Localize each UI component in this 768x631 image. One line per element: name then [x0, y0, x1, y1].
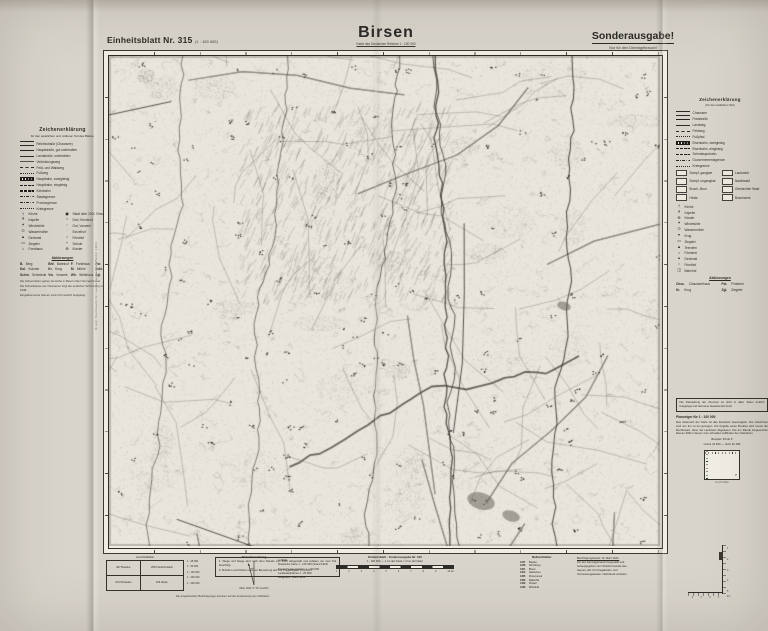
- abbreviation-pair: F.Forsthaus: [71, 262, 94, 266]
- area-symbol-row: Buschwerk: [722, 194, 765, 201]
- map-symbol-icon: ⌂: [676, 252, 682, 256]
- line-symbol-sw-thin: [20, 161, 34, 162]
- legend-symbol-row: ⌂Forsthaus: [20, 247, 61, 251]
- adjoining-cell: 298 Friedrichstadt: [140, 560, 183, 575]
- legend-line-list: ChausseePoststraßeLandwegFeldwegFußpfadE…: [676, 111, 764, 169]
- abbreviation-pair: Schm.Schmiede: [20, 273, 46, 277]
- line-symbol-sw-dot: [676, 166, 690, 167]
- line-symbol-sw-solid: [20, 156, 34, 157]
- legend-title: Zeichenerklärung: [20, 127, 105, 134]
- abbreviation-pair: Zgl.Ziegelei: [722, 288, 765, 292]
- scale-tick-label: 2: [348, 570, 349, 573]
- legend-symbol-row: ▭Ziegelei: [20, 242, 61, 246]
- legend-line-row: Staatsgrenze: [20, 195, 105, 199]
- edition-scale: 1 : 100 000: [187, 571, 212, 575]
- abbreviation-pair: Vw.Vorwerk: [48, 273, 69, 277]
- grid-ticks-bottom: [109, 550, 662, 553]
- planzeiger-diagram: P: [704, 450, 740, 480]
- line-symbol-sw-dash: [676, 131, 690, 132]
- legend-footnote: Die Höhenzahlen geben die Höhe in Metern…: [20, 280, 105, 284]
- scale-ratio: 1 : 100 000 — 1 cm der Karte = 1 km der …: [336, 560, 454, 563]
- legend-line-row: Eisenbahn, eingleisig: [676, 147, 764, 151]
- corner-ruler: 12345 4321 km: [686, 543, 766, 605]
- legend-line-row: Verbindungsweg: [20, 160, 105, 164]
- declination-title: Nadelabweichung: [234, 555, 274, 559]
- map-symbol-icon: †: [676, 205, 682, 209]
- ruler-number: 1: [727, 547, 728, 550]
- scale-tick-labels: 12345678910 km: [336, 570, 454, 573]
- declination-value: Mitte 1944: 6° 30′ westlich: [234, 587, 274, 590]
- line-symbol-sw-thick: [20, 150, 34, 151]
- area-symbol-grid: Sumpf, gangbarLaubwaldSumpf, ungangbarNa…: [676, 170, 764, 203]
- mtb-rows: 1237Bauske1238Schönberg1301Birsen1302Sal…: [520, 561, 564, 590]
- legend-symbol-row: ✶Windmühle: [20, 224, 61, 228]
- grid-ticks-right: [664, 56, 667, 548]
- line-symbol-sw-rail1: [676, 154, 690, 155]
- abbreviation-pair: Fst.Försterei: [722, 282, 765, 286]
- planzeiger-ticks-y: [706, 451, 708, 479]
- legend-symbols-left: †Kirche✝Kapelle✶Windmühle⊙Wassermühle▲De…: [20, 212, 61, 253]
- map-symbol-icon: ○: [64, 236, 70, 240]
- point-symbol-list: †Kirche✝Kapelle⊕Kloster✶Windmühle⊙Wasser…: [676, 205, 764, 273]
- legend-symbol-row: ▴Denkmal: [676, 257, 764, 261]
- scale-bar: [336, 565, 454, 570]
- source-line: Deutsche Heereskarte 1 : 100 000: [278, 568, 336, 572]
- map-symbol-icon: ·: [64, 230, 70, 234]
- map-canvas: [109, 56, 660, 546]
- abbreviations-title: Abkürzungen: [676, 276, 764, 280]
- ruler-number: 3: [700, 596, 701, 599]
- ruler-horizontal-scale: [688, 592, 723, 596]
- edition-scale: 1 : 50 000: [187, 565, 212, 569]
- area-symbol-row: Sumpf, gangbar: [676, 170, 719, 177]
- edition-scale: 1 : 300 000: [187, 582, 212, 586]
- legend-subtitle: für den westlichen und mittleren Teil de…: [20, 135, 105, 139]
- planzeiger-ticks-x: [705, 452, 739, 454]
- scale-tick-label: 8: [423, 570, 424, 573]
- legend-symbol-row: +Schule: [64, 242, 105, 246]
- legend-line-row: Gouvernementsgrenze: [676, 158, 764, 162]
- area-symbol-row: Gemischter Wald: [722, 186, 765, 193]
- map-symbol-icon: ▴: [676, 257, 682, 261]
- line-symbol-sw-rail1: [676, 148, 690, 149]
- scale-tick-label: 4: [373, 570, 374, 573]
- source-line: Russische Karte 1 : 126 000 (Stand 1915): [278, 563, 336, 567]
- scale-tick-label: 7: [410, 570, 411, 573]
- legend-line-row: Hauptbahn, eingleisig: [20, 183, 105, 187]
- planzeiger-title: Planzeiger für 1 : 100 000: [676, 415, 768, 419]
- source-line: Wegenetz: Stand 1943: [278, 576, 336, 580]
- map-symbol-icon: +: [64, 242, 70, 246]
- legend-symbol-row: ▫Gut, Vorwerk: [64, 224, 105, 228]
- border-disclaimer-box: Die Darstellung der Grenzen ist nicht in…: [676, 398, 768, 412]
- legend-symbol-row: ·Einzelhof: [64, 230, 105, 234]
- line-symbol-sw-dashdot: [20, 202, 34, 203]
- edition-scale-list: 1 : 25 0001 : 50 0001 : 100 0001 : 200 0…: [187, 560, 212, 587]
- map-symbol-icon: ✶: [676, 222, 682, 226]
- adjoining-cell: 314 Schaulen: [107, 575, 141, 590]
- adjoining-grid: 297 Bauske 298 Friedrichstadt 314 Schaul…: [106, 560, 184, 591]
- ruler-number: 2: [709, 596, 710, 599]
- legend-footnote: Eingeklammerte Namen sind nicht amtlich …: [20, 294, 105, 298]
- legend-title: Zeichenerklärung: [676, 97, 764, 103]
- declination-diagram: Nadelabweichung Mitte 1944: 6° 30′ westl…: [234, 555, 274, 590]
- legend-line-row: Fußweg: [20, 171, 105, 175]
- map-symbol-icon: ⊙: [20, 230, 26, 234]
- map-symbol-icon: ⊕: [64, 248, 70, 252]
- legend-symbol-row: ▪Dorf, Kirchdorf: [64, 218, 105, 222]
- ruler-number: 1: [718, 596, 719, 599]
- area-symbol-row: Sumpf, ungangbar: [676, 178, 719, 185]
- line-symbol-sw-solid: [676, 125, 690, 126]
- adjoining-cell: 297 Bauske: [107, 560, 141, 575]
- legend-line-row: Landstraße, unterhalten: [20, 154, 105, 158]
- legend-line-row: Kleinbahn: [20, 189, 105, 193]
- mtb-list: Meßtischblätter: 1237Bauske1238Schönberg…: [520, 556, 564, 590]
- declination-arrows: [241, 560, 267, 586]
- sources-block: Luftbild:Russische Karte 1 : 126 000 (St…: [278, 559, 336, 580]
- line-symbol-sw-dot: [20, 208, 34, 209]
- line-symbol-sw-rail2: [20, 177, 34, 181]
- mtb-row: 1430Wobolniki: [520, 586, 564, 589]
- map-symbol-icon: ⌂: [20, 248, 26, 252]
- ruler-number: 4: [727, 579, 728, 582]
- map-symbol-icon: ▲: [676, 246, 682, 250]
- page-title: Birsen: [331, 25, 441, 41]
- area-symbol-row: Heide: [676, 194, 719, 201]
- line-symbol-sw-rail1: [20, 190, 34, 191]
- legend-line-list: Reichsstraße (Chaussee)Hauptstraße, gut …: [20, 141, 105, 210]
- planzeiger-scale-numbers: 0 1 2 3 4 km: [676, 481, 768, 484]
- abbreviations-title: Abkürzungen: [20, 256, 105, 260]
- scale-tick-label: 1: [336, 570, 337, 573]
- line-symbol-sw-double: [20, 141, 34, 146]
- ruler-number: 3: [727, 569, 728, 572]
- map-title-block: Birsen Karte des Deutschen Reiches 1 : 1…: [331, 25, 441, 46]
- area-symbol-row: Nadelwald: [722, 178, 765, 185]
- legend-symbol-row: †Kirche: [676, 205, 764, 209]
- legend-symbol-row: ✝Kapelle: [20, 218, 61, 222]
- adjoining-sheets-table: Anschlußblätter 297 Bauske 298 Friedrich…: [106, 556, 184, 591]
- legend-line-row: Reichsstraße (Chaussee): [20, 141, 105, 146]
- edition-scale: 1 : 25 000: [187, 560, 212, 564]
- abbreviation-pair: Wh.Wirtshaus: [71, 273, 94, 277]
- map-inner-frame: [108, 55, 663, 549]
- legend-line-row: Kreisgrenze: [676, 164, 764, 168]
- legend-symbol-row: ▾Krug: [676, 234, 764, 238]
- map-symbol-icon: ▪: [64, 218, 70, 222]
- legend-symbol-row: ✝Kapelle: [676, 211, 764, 215]
- legend-symbol-row: ⌂Försterei: [676, 251, 764, 255]
- scale-tick-label: 6: [398, 570, 399, 573]
- legend-line-row: Schmalspurbahn: [676, 152, 764, 156]
- scale-tick-label: 5: [386, 570, 387, 573]
- legend-line-row: Poststraße: [676, 117, 764, 121]
- line-symbol-sw-thick: [676, 119, 690, 120]
- legend-panel-east: Zeichenerklärung (für den östlichen Teil…: [676, 97, 764, 294]
- legend-panel-west: Zeichenerklärung für den westlichen und …: [20, 127, 105, 299]
- abbreviations-table: Chss.ChausseehausFst.FörstereiKr.KrugZgl…: [676, 282, 764, 294]
- legend-symbol-row: ○Friedhof: [64, 236, 105, 240]
- bottom-footnote: Die eingedruckten Berichtigungen beruhen…: [112, 595, 334, 598]
- sheet-scale-note: (1 : 100 000): [195, 40, 218, 44]
- edition-scale: 1 : 200 000: [187, 576, 212, 580]
- grid-notes-panel: Die Darstellung der Grenzen ist nicht in…: [676, 398, 768, 484]
- line-symbol-sw-dot: [20, 173, 34, 174]
- page-subtitle: Karte des Deutschen Reiches 1 : 100 000: [331, 42, 441, 46]
- legend-symbol-row: ▭Ziegelei: [676, 240, 764, 244]
- area-symbol-row: Bruch, Moor: [676, 186, 719, 193]
- abbreviation-pair: M.Mühle: [71, 267, 94, 271]
- ruler-number: 5: [727, 590, 728, 593]
- legend-symbol-row: ⊕Kloster: [64, 247, 105, 251]
- line-symbol-sw-dashdot: [676, 160, 690, 161]
- legend-symbol-columns: †Kirche✝Kapelle✶Windmühle⊙Wassermühle▲De…: [20, 212, 105, 253]
- planzeiger-text: Das Gitternetz der Karte ist das Deutsch…: [676, 421, 768, 436]
- area-symbol-box: [676, 194, 687, 201]
- legend-line-row: Chaussee: [676, 111, 764, 116]
- area-symbol-box: [676, 170, 687, 177]
- line-symbol-sw-dot: [676, 136, 690, 137]
- area-symbol-box: [676, 186, 687, 193]
- ruler-horizontal-numbers: 4321: [688, 596, 723, 599]
- planzeiger-example: Beispiel: Punkt P: [676, 438, 768, 442]
- abbreviation-pair: Chss.Chausseehaus: [676, 282, 719, 286]
- legend-line-row: Hauptbahn, zweigleisig: [20, 177, 105, 181]
- sheet-number-text: Einheitsblatt Nr. 315: [107, 35, 192, 45]
- sheet-number-label: Einheitsblatt Nr. 315 (1 : 100 000): [107, 35, 218, 45]
- map-frame: [103, 50, 668, 554]
- special-edition-block: Sonderausgabe! Nur für den Dienstgebrauc…: [572, 26, 694, 50]
- map-symbol-icon: †: [20, 213, 26, 217]
- legend-footnotes: Die Höhenzahlen geben die Höhe in Metern…: [20, 280, 105, 298]
- legend-symbols-right: ◼Stadt über 2000 Einw.▪Dorf, Kirchdorf▫G…: [64, 212, 105, 253]
- legend-symbol-row: ⊙Wassermühle: [20, 230, 61, 234]
- ruler-number: 4: [692, 596, 693, 599]
- legend-subtitle: (für den östlichen Teil): [676, 104, 764, 108]
- map-symbol-icon: ⊕: [676, 217, 682, 221]
- legend-line-row: Fußpfad: [676, 135, 764, 139]
- map-symbol-icon: ▭: [676, 240, 682, 244]
- legend-symbol-row: ○Friedhof: [676, 263, 764, 267]
- line-symbol-sw-rail1: [20, 185, 34, 186]
- line-symbol-sw-double: [676, 111, 690, 116]
- ruler-vertical-numbers: 12345: [727, 547, 728, 593]
- adjoining-cell: 316 Abele: [140, 575, 183, 590]
- abbreviation-pair: Kr.Krug: [48, 267, 69, 271]
- area-symbol-box: [722, 178, 733, 185]
- map-symbol-icon: ▫: [64, 224, 70, 228]
- area-symbol-box: [722, 186, 733, 193]
- line-symbol-sw-dash: [20, 167, 34, 168]
- map-symbol-icon: ◼: [64, 213, 70, 217]
- area-symbol-box: [676, 178, 687, 185]
- map-symbol-icon: ✝: [676, 211, 682, 215]
- scale-tick-label: 10 km: [447, 570, 454, 573]
- print-imprint-vertical: Druck: Reichsamt für Landesaufnahme, Ber…: [94, 242, 98, 330]
- legend-footnote: Die Schreibweise der Ortsnamen folgt der…: [20, 285, 105, 292]
- map-symbol-icon: ⊙: [676, 228, 682, 232]
- map-symbol-icon: ○: [676, 263, 682, 267]
- map-symbol-icon: ▲: [20, 236, 26, 240]
- map-symbol-icon: ▭: [20, 242, 26, 246]
- legend-symbol-row: ⊕Kloster: [676, 216, 764, 220]
- legend-symbol-row: ⊙Wassermühle: [676, 228, 764, 232]
- legend-line-row: Hauptstraße, gut unterhalten: [20, 148, 105, 152]
- area-symbol-box: [722, 194, 733, 201]
- line-symbol-sw-dashdot: [20, 196, 34, 197]
- legend-line-row: Landweg: [676, 123, 764, 127]
- map-symbol-icon: ✝: [20, 218, 26, 222]
- scale-tick-label: 3: [361, 570, 362, 573]
- abbreviation-pair: Kol.Kolonie: [20, 267, 46, 271]
- map-symbol-icon: ◫: [676, 269, 682, 273]
- planzeiger-example-values: rechts 44 520 — hoch 62 180: [676, 443, 768, 447]
- scale-block: Einheitsblatt · Sonderausgabe Nr. 315 1 …: [336, 555, 454, 573]
- legend-line-row: Eisenbahn, zweigleisig: [676, 141, 764, 145]
- imprint-line: Vermessungswesen. Nachdruck verboten.: [577, 573, 661, 577]
- legend-symbol-row: ◫Bahnhof: [676, 269, 764, 273]
- abbreviation-pair: Kr.Krug: [676, 288, 719, 292]
- mtb-list-title: Meßtischblätter:: [520, 556, 564, 560]
- legend-line-row: Kreisgrenze: [20, 207, 105, 211]
- legend-symbol-row: ▲Denkmal: [20, 236, 61, 240]
- legend-symbol-row: †Kirche: [20, 212, 61, 216]
- map-symbol-icon: ▾: [676, 234, 682, 238]
- ruler-unit-label: km: [727, 595, 730, 598]
- legend-line-row: Feld- und Waldweg: [20, 166, 105, 170]
- ruler-slider-mark: [719, 552, 723, 560]
- publisher-imprint: Berichtigungsstand: 10. März 1944.Für de…: [577, 557, 661, 577]
- line-symbol-sw-rail2: [676, 141, 690, 145]
- scale-title: Einheitsblatt · Sonderausgabe Nr. 315: [336, 555, 454, 559]
- legend-symbol-row: ▲Teerofen: [676, 246, 764, 250]
- area-symbol-row: Laubwald: [722, 170, 765, 177]
- legend-line-row: Feldweg: [676, 129, 764, 133]
- area-symbol-box: [722, 170, 733, 177]
- restricted-use-label: Nur für den Dienstgebrauch!: [572, 46, 694, 50]
- scale-tick-label: 9: [435, 570, 436, 573]
- legend-line-row: Provinzgrenze: [20, 201, 105, 205]
- abbreviation-pair: B.Berg: [20, 262, 46, 266]
- planzeiger-point-label: P: [735, 474, 737, 478]
- ruler-number: 2: [727, 558, 728, 561]
- abbreviation-pair: Bhf.Bahnhof: [48, 262, 69, 266]
- legend-symbol-row: ◼Stadt über 2000 Einw.: [64, 212, 105, 216]
- map-symbol-icon: ✶: [20, 224, 26, 228]
- abbreviations-table: B.BergBhf.BahnhofF.ForsthausFbr.FabrikKo…: [20, 262, 105, 277]
- special-edition-label: Sonderausgabe!: [592, 30, 674, 44]
- legend-symbol-row: ✶Windmühle: [676, 222, 764, 226]
